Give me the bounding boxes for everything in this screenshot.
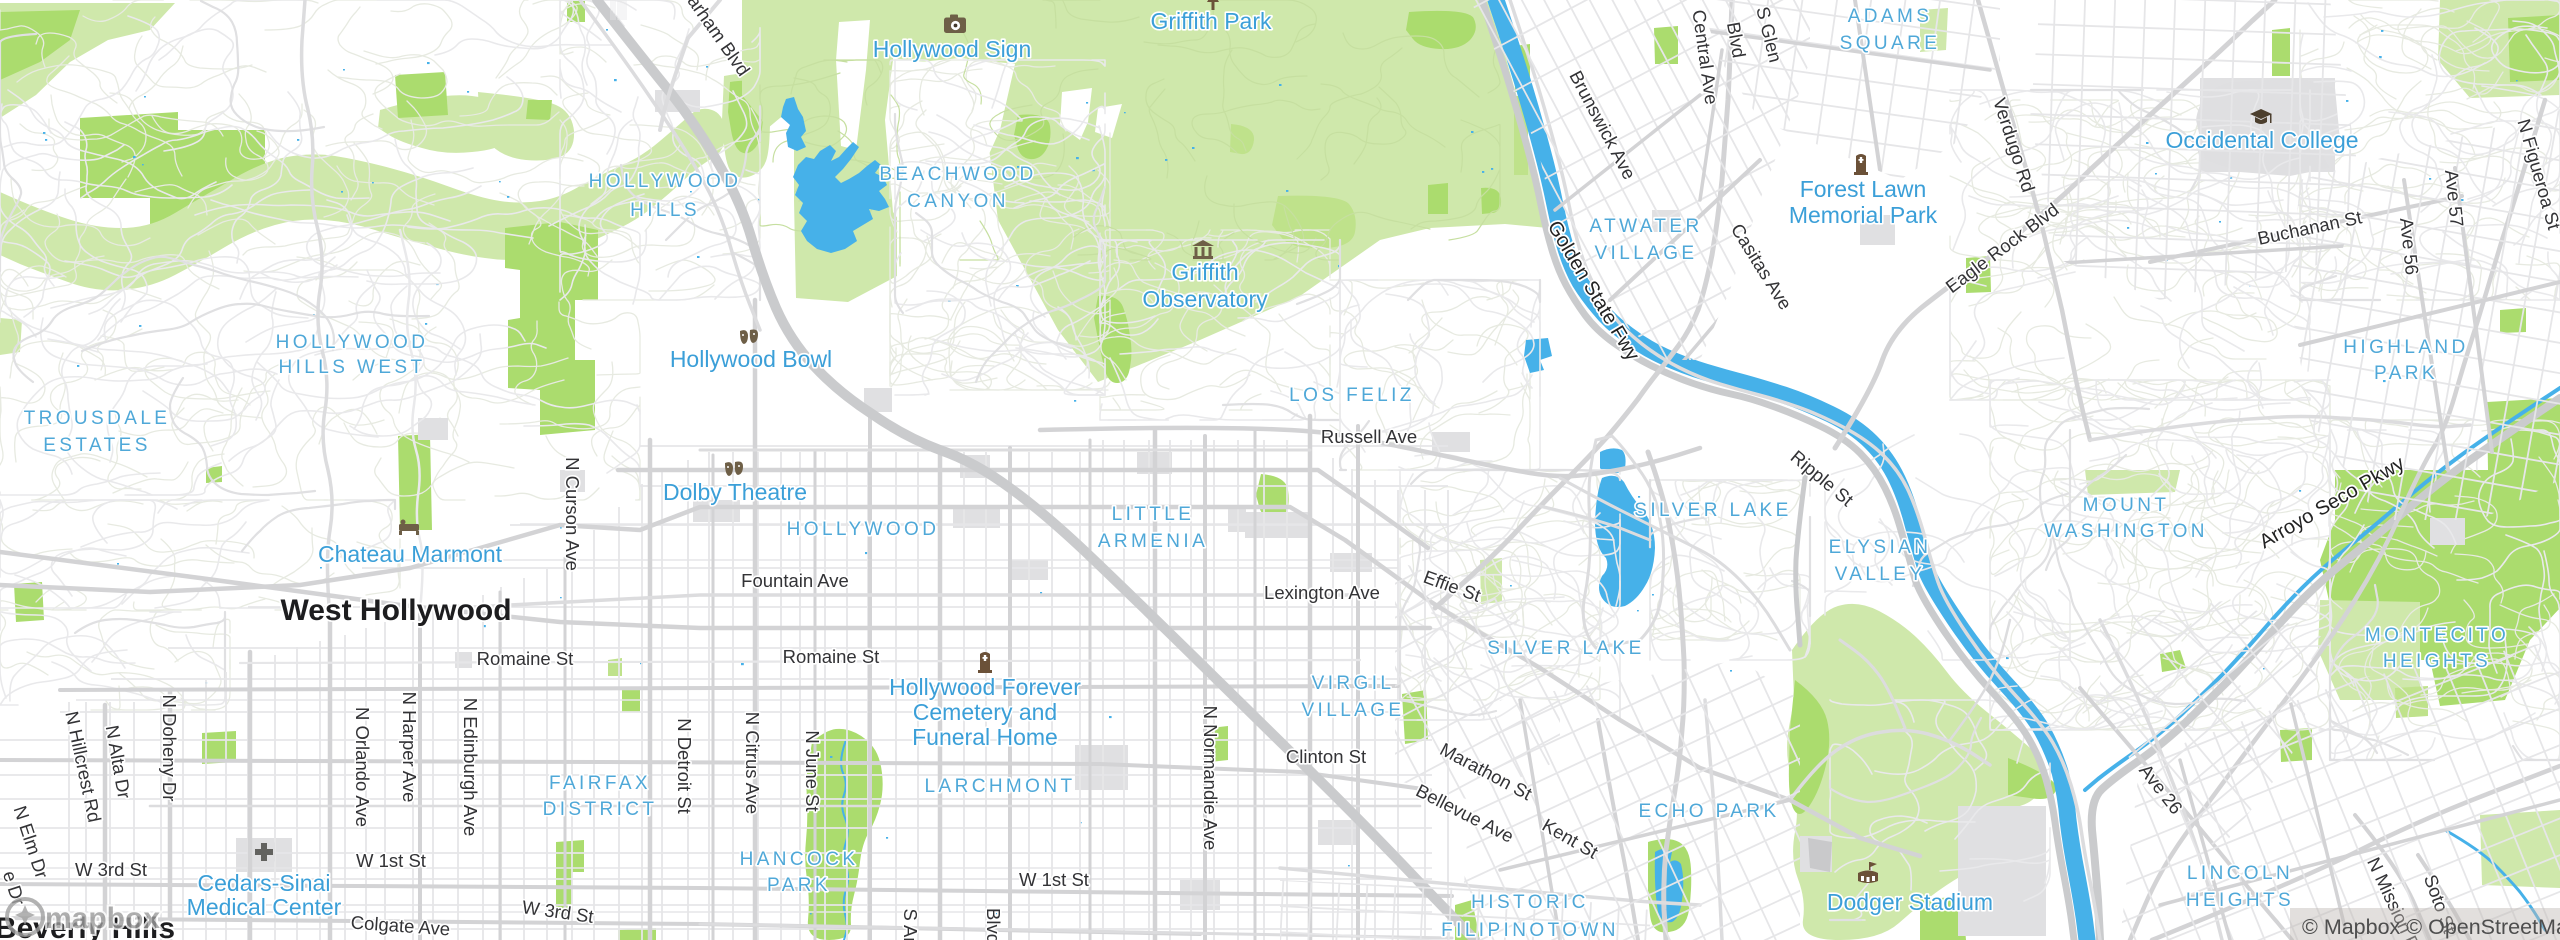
svg-text:Griffith Park: Griffith Park — [1151, 8, 1272, 34]
svg-text:ELYSIAN: ELYSIAN — [1829, 537, 1932, 558]
svg-text:West Hollywood: West Hollywood — [280, 594, 511, 627]
svg-text:CANYON: CANYON — [907, 191, 1009, 212]
svg-text:Chateau Marmont: Chateau Marmont — [318, 541, 503, 567]
svg-text:W 3rd St: W 3rd St — [75, 859, 147, 880]
svg-text:N June St: N June St — [802, 730, 823, 811]
svg-text:© Mapbox © OpenStreetMap: © Mapbox © OpenStreetMap — [2302, 915, 2560, 939]
svg-text:Occidental College: Occidental College — [2165, 127, 2358, 153]
svg-text:VIRGIL: VIRGIL — [1312, 673, 1395, 694]
svg-text:VILLAGE: VILLAGE — [1301, 700, 1404, 721]
svg-text:Memorial Park: Memorial Park — [1789, 202, 1938, 228]
svg-text:Observatory: Observatory — [1142, 286, 1268, 312]
svg-text:ADAMS: ADAMS — [1848, 6, 1933, 27]
svg-text:HILLS WEST: HILLS WEST — [279, 357, 426, 378]
svg-text:Hollywood Sign: Hollywood Sign — [873, 36, 1032, 62]
svg-text:FILIPINOTOWN: FILIPINOTOWN — [1441, 920, 1619, 940]
svg-text:N Detroit St: N Detroit St — [674, 718, 695, 814]
svg-text:MONTECITO: MONTECITO — [2365, 625, 2509, 646]
svg-text:HANCOCK: HANCOCK — [740, 849, 859, 870]
svg-text:HOLLYWOOD: HOLLYWOOD — [276, 332, 429, 353]
svg-text:Russell Ave: Russell Ave — [1321, 426, 1417, 447]
svg-text:WASHINGTON: WASHINGTON — [2044, 521, 2208, 542]
svg-text:HISTORIC: HISTORIC — [1471, 892, 1589, 913]
svg-text:DISTRICT: DISTRICT — [543, 799, 658, 820]
svg-text:N Edinburgh Ave: N Edinburgh Ave — [460, 698, 481, 837]
svg-text:HILLS: HILLS — [630, 200, 700, 221]
svg-text:S Ar: S Ar — [900, 909, 921, 940]
svg-text:N Citrus Ave: N Citrus Ave — [742, 712, 763, 814]
svg-text:SILVER LAKE: SILVER LAKE — [1487, 638, 1644, 659]
svg-text:VILLAGE: VILLAGE — [1594, 243, 1697, 264]
svg-text:N Orlando Ave: N Orlando Ave — [352, 707, 373, 827]
svg-text:ARMENIA: ARMENIA — [1098, 531, 1208, 552]
svg-text:PARK: PARK — [767, 875, 831, 896]
svg-text:HEIGHTS: HEIGHTS — [2186, 890, 2294, 911]
svg-text:N Doheny Dr: N Doheny Dr — [159, 695, 180, 802]
svg-text:Griffith: Griffith — [1171, 259, 1238, 285]
svg-text:ATWATER: ATWATER — [1589, 216, 1702, 237]
svg-text:MOUNT: MOUNT — [2083, 495, 2170, 516]
svg-text:Dolby Theatre: Dolby Theatre — [663, 479, 807, 505]
svg-text:VALLEY: VALLEY — [1835, 564, 1926, 585]
svg-text:ESTATES: ESTATES — [43, 435, 151, 456]
svg-text:Clinton St: Clinton St — [1286, 746, 1366, 767]
svg-text:Romaine St: Romaine St — [783, 646, 880, 667]
svg-text:SILVER LAKE: SILVER LAKE — [1634, 500, 1791, 521]
svg-text:TROUSDALE: TROUSDALE — [24, 408, 171, 429]
svg-text:W 1st St: W 1st St — [1019, 869, 1089, 890]
svg-text:N Curson Ave: N Curson Ave — [562, 457, 583, 571]
svg-text:Cemetery and: Cemetery and — [913, 699, 1057, 725]
svg-text:Hollywood Bowl: Hollywood Bowl — [670, 346, 832, 372]
svg-text:SQUARE: SQUARE — [1840, 33, 1941, 54]
svg-text:Fountain Ave: Fountain Ave — [741, 570, 849, 591]
svg-text:Lexington Ave: Lexington Ave — [1264, 582, 1380, 603]
svg-text:FAIRFAX: FAIRFAX — [549, 773, 651, 794]
svg-text:Dodger Stadium: Dodger Stadium — [1827, 889, 1993, 915]
svg-text:W 1st St: W 1st St — [356, 850, 426, 871]
svg-text:N Harper Ave: N Harper Ave — [399, 692, 420, 803]
svg-text:Hollywood Forever: Hollywood Forever — [889, 674, 1081, 700]
svg-text:Blvd: Blvd — [983, 908, 1004, 940]
svg-text:LINCOLN: LINCOLN — [2187, 863, 2293, 884]
svg-text:PARK: PARK — [2374, 363, 2438, 384]
svg-text:HOLLYWOOD: HOLLYWOOD — [787, 519, 940, 540]
svg-text:HIGHLAND: HIGHLAND — [2343, 337, 2468, 358]
svg-text:Cedars-Sinai: Cedars-Sinai — [198, 870, 331, 896]
svg-text:Funeral Home: Funeral Home — [912, 724, 1058, 750]
svg-text:Medical Center: Medical Center — [187, 894, 342, 920]
svg-text:mapbox: mapbox — [45, 902, 160, 935]
svg-text:LITTLE: LITTLE — [1112, 504, 1195, 525]
svg-text:HEIGHTS: HEIGHTS — [2383, 651, 2491, 672]
svg-text:ECHO PARK: ECHO PARK — [1638, 801, 1779, 822]
svg-text:BEACHWOOD: BEACHWOOD — [879, 164, 1036, 185]
svg-text:N Normandie Ave: N Normandie Ave — [1200, 706, 1221, 851]
svg-text:LARCHMONT: LARCHMONT — [925, 776, 1076, 797]
svg-text:HOLLYWOOD: HOLLYWOOD — [589, 171, 742, 192]
svg-text:Romaine St: Romaine St — [477, 648, 574, 669]
svg-text:Forest Lawn: Forest Lawn — [1800, 176, 1927, 202]
svg-text:LOS FELIZ: LOS FELIZ — [1289, 385, 1415, 406]
